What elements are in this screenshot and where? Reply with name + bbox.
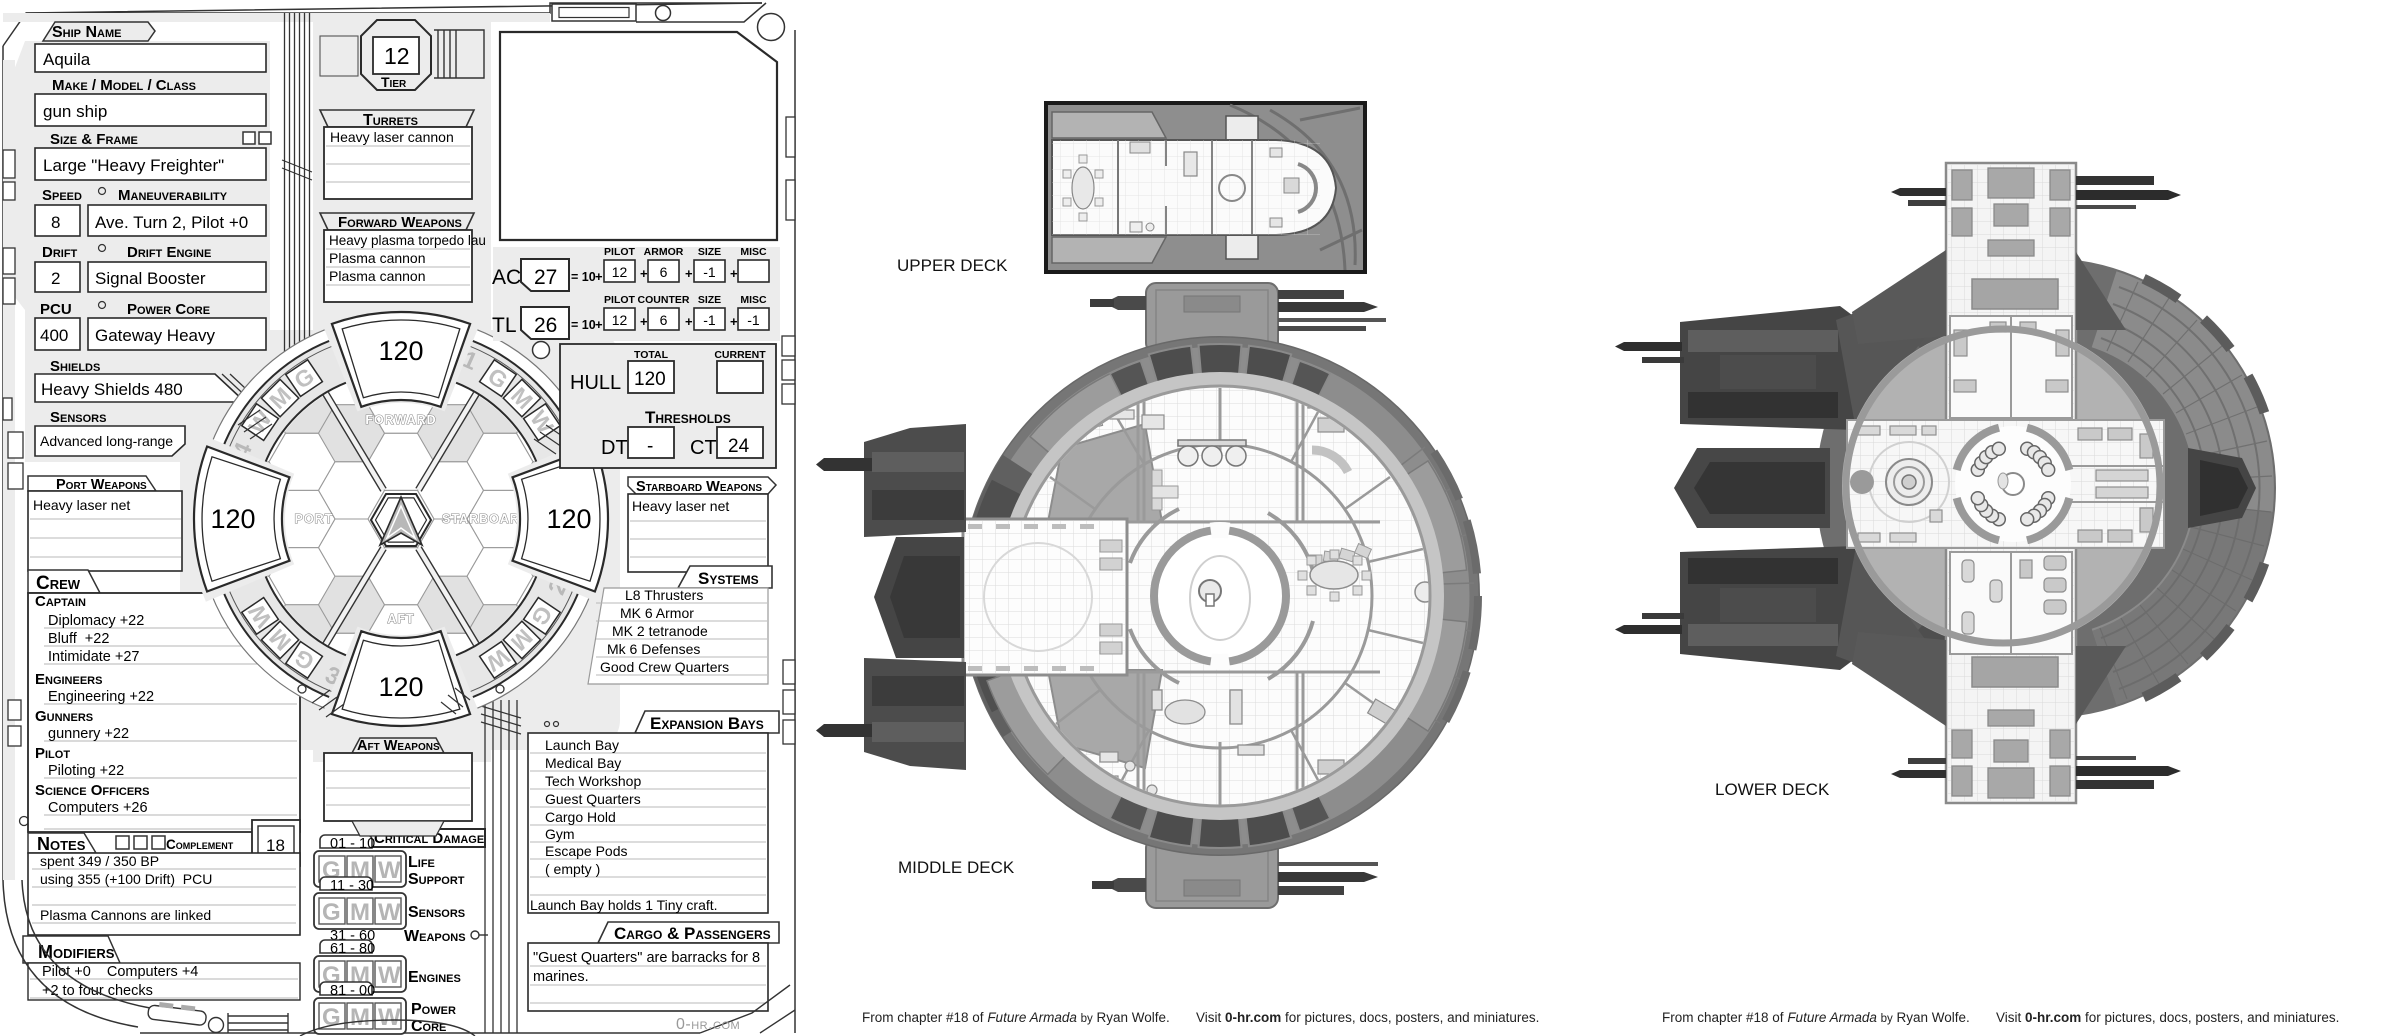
svg-text:= 10: = 10 <box>571 270 596 284</box>
svg-text:CURRENT: CURRENT <box>714 349 766 361</box>
svg-text:18: 18 <box>266 836 285 855</box>
svg-text:Bluff +22: Bluff +22 <box>48 631 109 647</box>
svg-text:Ave. Turn 2, Pilot +0: Ave. Turn 2, Pilot +0 <box>95 213 248 232</box>
svg-text:8: 8 <box>51 213 60 232</box>
svg-text:Thresholds: Thresholds <box>645 408 731 427</box>
svg-text:G: G <box>322 899 341 926</box>
svg-text:Engines: Engines <box>408 969 461 986</box>
svg-text:MK 6 Armor: MK 6 Armor <box>620 605 694 621</box>
svg-text:W: W <box>378 1004 401 1031</box>
svg-text:Aquila: Aquila <box>43 50 91 69</box>
svg-text:Gym: Gym <box>545 826 575 842</box>
svg-text:Plasma cannon: Plasma cannon <box>329 268 426 284</box>
svg-text:Gateway Heavy: Gateway Heavy <box>95 326 215 345</box>
svg-text:From chapter #18 of Future Arm: From chapter #18 of Future Armada by Rya… <box>1662 1010 1970 1025</box>
svg-text:0-hr.com: 0-hr.com <box>676 1016 740 1033</box>
svg-text:Sensors: Sensors <box>408 904 465 921</box>
svg-text:Visit 0-hr.com for pictures,: Visit 0-hr.com for pictures, docs, poste… <box>1996 1010 2339 1025</box>
svg-text:6: 6 <box>660 264 668 280</box>
svg-text:Power: Power <box>411 1001 456 1018</box>
svg-text:Computers +26: Computers +26 <box>48 800 148 816</box>
svg-text:Gunners: Gunners <box>35 708 93 725</box>
svg-text:61 - 80: 61 - 80 <box>330 941 375 957</box>
svg-text:120: 120 <box>378 672 423 702</box>
svg-text:SIZE: SIZE <box>698 246 721 258</box>
svg-text:120: 120 <box>378 336 423 366</box>
svg-text:Crew: Crew <box>36 573 81 594</box>
svg-text:Large "Heavy Freighter": Large "Heavy Freighter" <box>43 156 224 175</box>
svg-text:-1: -1 <box>703 312 716 328</box>
svg-text:Science Officers: Science Officers <box>35 782 149 799</box>
svg-text:MK 2 tetranode: MK 2 tetranode <box>612 623 708 639</box>
svg-text:= 10: = 10 <box>571 318 596 332</box>
svg-text:W: W <box>378 857 401 884</box>
svg-text:Drift: Drift <box>42 244 78 261</box>
svg-text:+: + <box>640 266 648 281</box>
svg-text:M: M <box>350 1004 370 1031</box>
svg-text:Ship Name: Ship Name <box>52 24 121 41</box>
svg-text:Modifiers: Modifiers <box>38 942 115 962</box>
svg-text:+: + <box>595 269 603 284</box>
svg-text:DT: DT <box>601 437 628 459</box>
svg-text:HULL: HULL <box>570 372 621 394</box>
svg-text:gunnery +22: gunnery +22 <box>48 726 129 742</box>
svg-text:From chapter #18 of Future Arm: From chapter #18 of Future Armada by Rya… <box>862 1010 1170 1025</box>
svg-text:spent 349 / 350 BP: spent 349 / 350 BP <box>40 853 159 869</box>
svg-text:STARBOARD: STARBOARD <box>442 512 530 526</box>
svg-text:using 355 (+100 Drift) PCU: using 355 (+100 Drift) PCU <box>40 871 212 887</box>
svg-text:MISC: MISC <box>740 246 767 258</box>
svg-text:Weapons: Weapons <box>404 928 466 945</box>
svg-text:Heavy laser cannon: Heavy laser cannon <box>330 129 454 145</box>
svg-text:Good Crew Quarters: Good Crew Quarters <box>600 659 729 675</box>
svg-text:+: + <box>685 266 693 281</box>
svg-text:( empty ): ( empty ) <box>545 861 600 877</box>
svg-text:AC: AC <box>492 266 521 289</box>
svg-text:Heavy plasma torpedo lau: Heavy plasma torpedo lau <box>329 233 486 248</box>
svg-text:W: W <box>378 962 401 989</box>
svg-text:Mk 6 Defenses: Mk 6 Defenses <box>607 641 700 657</box>
svg-text:Medical Bay: Medical Bay <box>545 755 621 771</box>
svg-text:Life: Life <box>408 854 435 871</box>
svg-text:Heavy laser net: Heavy laser net <box>33 497 130 513</box>
svg-text:Escape Pods: Escape Pods <box>545 843 628 859</box>
svg-text:Support: Support <box>408 871 465 888</box>
svg-text:"Guest Quarters" are barracks: "Guest Quarters" are barracks for 8 <box>533 950 760 966</box>
svg-text:Complement: Complement <box>166 837 234 852</box>
svg-text:+: + <box>685 314 693 329</box>
svg-text:26: 26 <box>534 314 557 337</box>
svg-text:Starboard Weapons: Starboard Weapons <box>636 479 762 495</box>
svg-text:Speed: Speed <box>42 187 82 204</box>
svg-text:Tech Workshop: Tech Workshop <box>545 773 641 789</box>
svg-text:Power Core: Power Core <box>127 301 210 318</box>
svg-text:TOTAL: TOTAL <box>634 349 669 361</box>
svg-text:12: 12 <box>612 264 628 280</box>
svg-text:gun ship: gun ship <box>43 102 107 121</box>
svg-text:CT: CT <box>690 437 717 459</box>
svg-text:FORWARD: FORWARD <box>365 413 436 427</box>
svg-text:PILOT: PILOT <box>604 246 636 258</box>
svg-text:MIDDLE DECK: MIDDLE DECK <box>898 858 1015 877</box>
svg-text:UPPER DECK: UPPER DECK <box>897 256 1008 275</box>
svg-text:Engineers: Engineers <box>35 671 102 688</box>
svg-text:Diplomacy +22: Diplomacy +22 <box>48 613 144 629</box>
svg-text:+: + <box>730 314 738 329</box>
svg-text:Pilot: Pilot <box>35 745 70 762</box>
svg-text:2: 2 <box>51 269 60 288</box>
svg-text:W: W <box>378 899 401 926</box>
svg-text:Plasma cannon: Plasma cannon <box>329 250 426 266</box>
svg-text:12: 12 <box>384 43 410 69</box>
svg-text:Advanced long-range: Advanced long-range <box>40 433 173 449</box>
svg-text:Captain: Captain <box>35 593 86 610</box>
svg-text:Cargo Hold: Cargo Hold <box>545 809 616 825</box>
svg-text:Drift Engine: Drift Engine <box>127 244 211 261</box>
svg-text:Sensors: Sensors <box>50 409 106 426</box>
svg-text:Shields: Shields <box>50 358 100 375</box>
svg-text:ARMOR: ARMOR <box>644 246 684 258</box>
svg-text:27: 27 <box>534 266 557 289</box>
svg-text:Forward Weapons: Forward Weapons <box>338 214 462 231</box>
svg-text:11 - 30: 11 - 30 <box>330 878 374 894</box>
svg-text:Make / Model / Class: Make / Model / Class <box>52 77 196 94</box>
svg-text:24: 24 <box>728 436 750 457</box>
svg-text:+: + <box>595 317 603 332</box>
svg-text:MISC: MISC <box>740 294 767 306</box>
svg-text:LOWER DECK: LOWER DECK <box>1715 780 1830 799</box>
svg-text:81 - 00: 81 - 00 <box>330 983 375 999</box>
svg-text:M: M <box>350 899 370 926</box>
svg-text:marines.: marines. <box>533 969 589 985</box>
svg-text:Engineering +22: Engineering +22 <box>48 689 154 705</box>
svg-text:120: 120 <box>546 504 591 534</box>
svg-text:-: - <box>647 436 653 457</box>
svg-text:Cargo & Passengers: Cargo & Passengers <box>614 924 771 943</box>
svg-text:Notes: Notes <box>37 834 86 854</box>
svg-text:L8 Thrusters: L8 Thrusters <box>625 587 703 603</box>
svg-text:12: 12 <box>612 312 628 328</box>
svg-text:Signal Booster: Signal Booster <box>95 269 206 288</box>
svg-text:+: + <box>640 314 648 329</box>
svg-text:Expansion Bays: Expansion Bays <box>650 714 764 733</box>
svg-text:Maneuverability: Maneuverability <box>118 187 228 204</box>
svg-text:AFT: AFT <box>387 612 414 626</box>
svg-text:120: 120 <box>634 369 666 390</box>
svg-text:TL: TL <box>492 314 517 337</box>
svg-text:Intimidate +27: Intimidate +27 <box>48 649 140 665</box>
svg-text:120: 120 <box>210 504 255 534</box>
svg-text:Plasma Cannons are linked: Plasma Cannons are linked <box>40 907 211 923</box>
svg-text:Launch Bay: Launch Bay <box>545 737 619 753</box>
svg-text:400: 400 <box>40 326 68 345</box>
svg-text:Piloting +22: Piloting +22 <box>48 763 124 779</box>
svg-text:-1: -1 <box>703 264 716 280</box>
svg-text:-1: -1 <box>747 312 760 328</box>
svg-text:PORT: PORT <box>295 512 334 526</box>
svg-text:Visit 0-hr.com for pictures,: Visit 0-hr.com for pictures, docs, poste… <box>1196 1010 1539 1025</box>
svg-text:SIZE: SIZE <box>698 294 721 306</box>
svg-text:PCU: PCU <box>40 301 72 318</box>
svg-text:Tier: Tier <box>381 74 407 90</box>
svg-text:Heavy laser net: Heavy laser net <box>632 498 729 514</box>
svg-text:PILOT: PILOT <box>604 294 636 306</box>
svg-text:+: + <box>730 266 738 281</box>
svg-text:6: 6 <box>660 312 668 328</box>
svg-text:Aft Weapons: Aft Weapons <box>357 738 440 754</box>
svg-text:01 - 10: 01 - 10 <box>330 836 375 852</box>
svg-text:Size & Frame: Size & Frame <box>50 131 138 148</box>
svg-text:COUNTER: COUNTER <box>638 294 690 306</box>
svg-text:Guest Quarters: Guest Quarters <box>545 791 641 807</box>
svg-text:Heavy Shields 480: Heavy Shields 480 <box>41 380 183 399</box>
svg-text:Launch Bay holds 1 Tiny craft.: Launch Bay holds 1 Tiny craft. <box>530 897 718 913</box>
svg-text:Systems: Systems <box>698 569 759 588</box>
